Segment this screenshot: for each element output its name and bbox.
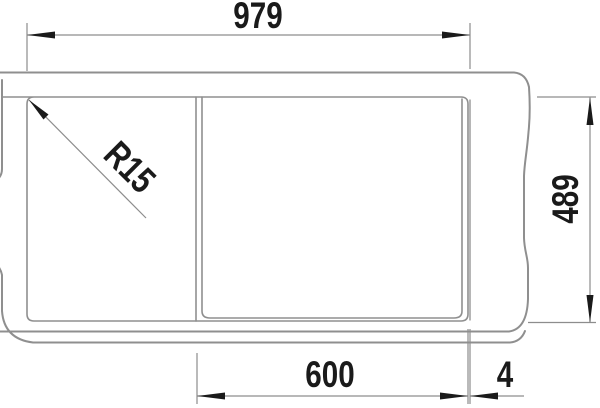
label-right-depth: 489 <box>546 174 587 223</box>
drawing-background <box>0 0 600 408</box>
label-top-width: 979 <box>233 0 282 37</box>
label-edge-gap: 4 <box>497 355 514 396</box>
sink-dimension-drawing: 979 489 600 4 R15 <box>0 0 600 408</box>
label-bowl-width: 600 <box>305 355 354 396</box>
technical-drawing-page: 979 489 600 4 R15 <box>0 0 600 408</box>
